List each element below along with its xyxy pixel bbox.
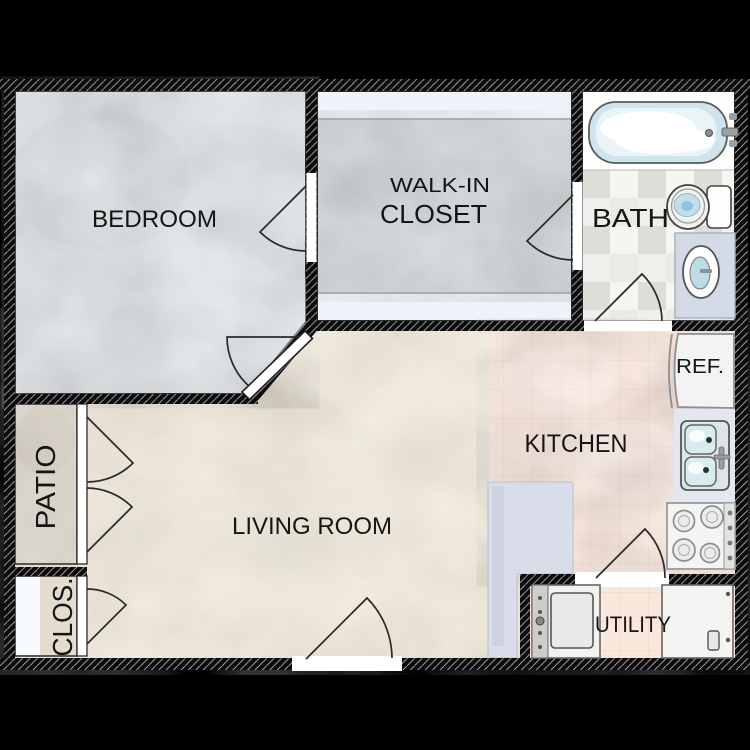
svg-text:PATIO: PATIO xyxy=(30,445,61,530)
svg-text:LIVING ROOM: LIVING ROOM xyxy=(232,513,392,540)
svg-text:BATH: BATH xyxy=(592,203,669,233)
svg-text:CLOS.: CLOS. xyxy=(47,578,78,657)
svg-text:REF.: REF. xyxy=(676,356,724,378)
svg-text:KITCHEN: KITCHEN xyxy=(525,430,628,458)
svg-text:BEDROOM: BEDROOM xyxy=(92,206,217,233)
svg-text:CLOSET: CLOSET xyxy=(380,199,487,229)
svg-text:WALK-IN: WALK-IN xyxy=(390,175,490,197)
svg-text:UTILITY: UTILITY xyxy=(595,612,671,637)
